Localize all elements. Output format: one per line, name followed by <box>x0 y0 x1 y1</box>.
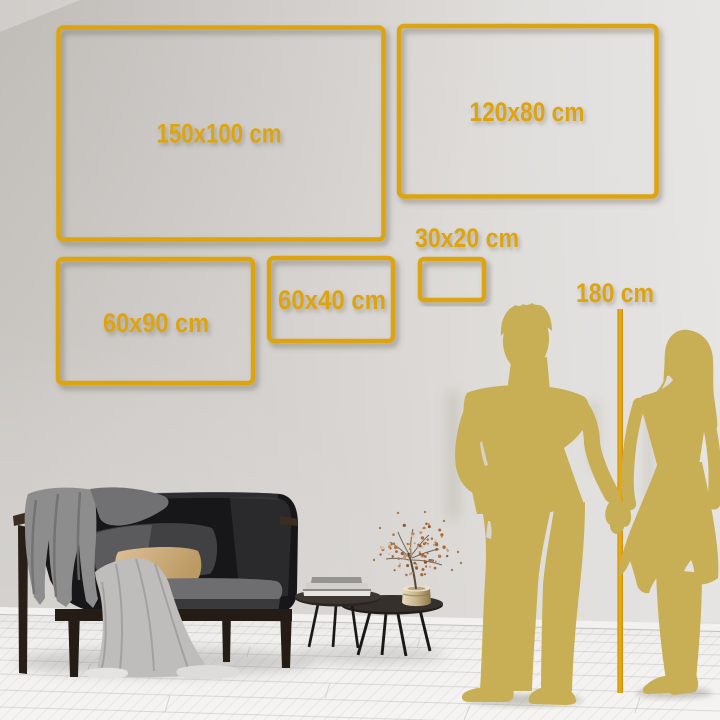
svg-text:120x80 cm: 120x80 cm <box>470 97 585 127</box>
svg-text:150x100 cm: 150x100 cm <box>157 119 282 149</box>
svg-text:180 cm: 180 cm <box>576 278 654 308</box>
svg-text:60x40 cm: 60x40 cm <box>278 285 386 315</box>
svg-text:30x20 cm: 30x20 cm <box>415 223 519 253</box>
svg-text:60x90 cm: 60x90 cm <box>103 308 209 338</box>
